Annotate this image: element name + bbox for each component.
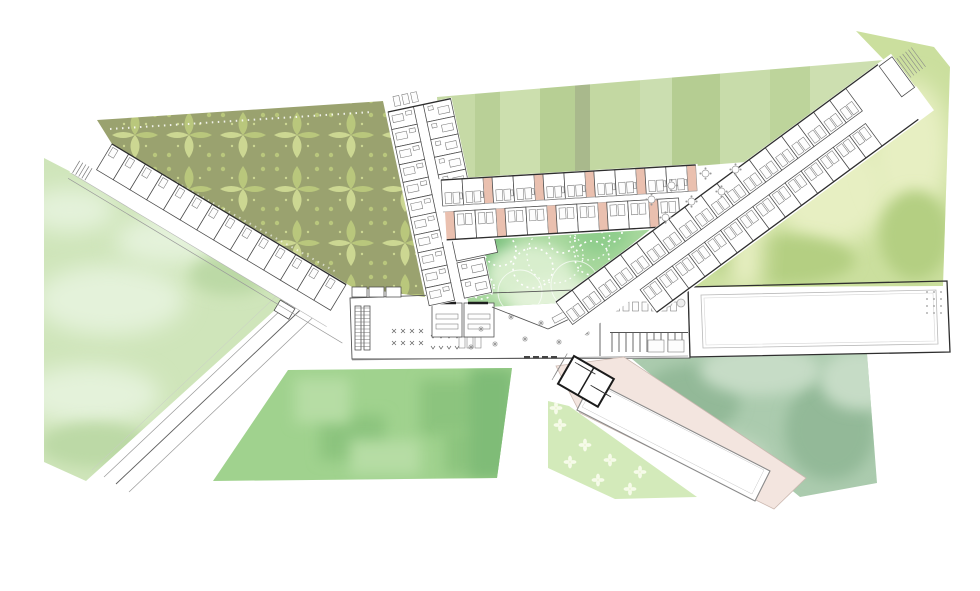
plant-icon bbox=[556, 339, 562, 345]
classroom-table bbox=[468, 324, 490, 329]
classroom-table bbox=[468, 314, 490, 319]
row-unit bbox=[441, 177, 493, 206]
chair-icon bbox=[419, 341, 423, 345]
bench-icon bbox=[447, 346, 451, 349]
step-line bbox=[560, 354, 567, 366]
storage-cell bbox=[369, 287, 384, 297]
hall-dot-row bbox=[926, 298, 942, 300]
classroom bbox=[432, 303, 462, 337]
balcony-cell bbox=[402, 94, 410, 105]
storage-cells bbox=[352, 287, 401, 297]
chair-icon bbox=[401, 341, 405, 345]
bench-icon bbox=[431, 346, 435, 349]
hall-court-line-2 bbox=[704, 293, 935, 345]
landscape-zones bbox=[20, 25, 960, 505]
classrooms bbox=[432, 303, 494, 337]
table-cluster-icon bbox=[699, 167, 711, 179]
table bbox=[459, 337, 465, 348]
chair-row bbox=[392, 329, 423, 333]
lawn-stripe bbox=[575, 40, 590, 190]
chair-icon bbox=[410, 329, 414, 333]
pool-garden-blob bbox=[700, 345, 820, 395]
lawn-stripe bbox=[640, 35, 672, 185]
room bbox=[543, 173, 566, 200]
shelf-unit bbox=[355, 306, 361, 350]
grove-blob bbox=[880, 190, 950, 280]
site-plan-canvas bbox=[0, 0, 980, 591]
row-unit bbox=[645, 165, 697, 194]
room bbox=[492, 176, 515, 203]
hall-dot-row bbox=[926, 305, 942, 307]
entrance-wall bbox=[492, 307, 548, 329]
classroom-table bbox=[436, 324, 458, 329]
fixture bbox=[633, 302, 639, 311]
chair-row bbox=[392, 341, 423, 345]
room bbox=[475, 209, 498, 238]
room bbox=[594, 170, 617, 197]
lawn-patch bbox=[470, 368, 515, 478]
lawn-stripe bbox=[500, 40, 540, 190]
room bbox=[607, 201, 630, 230]
door-dash bbox=[551, 356, 557, 358]
balcony-cell bbox=[411, 92, 419, 103]
room bbox=[577, 203, 600, 232]
plant-icon bbox=[508, 314, 514, 320]
room bbox=[505, 207, 528, 236]
bench-row bbox=[431, 346, 459, 349]
room bbox=[462, 178, 485, 205]
room bbox=[441, 179, 464, 206]
plant-icon bbox=[538, 320, 544, 326]
classroom bbox=[464, 303, 494, 337]
room bbox=[556, 204, 579, 233]
door-dash bbox=[533, 356, 539, 358]
wc-cabin bbox=[668, 340, 684, 352]
chair-icon bbox=[410, 341, 414, 345]
hall-dot-row bbox=[926, 291, 942, 293]
meadow-blob bbox=[20, 365, 160, 425]
bench-icon bbox=[455, 346, 459, 349]
plant-icon bbox=[492, 341, 498, 347]
door-dash bbox=[524, 356, 530, 358]
door-dash bbox=[542, 356, 548, 358]
storage-cell bbox=[352, 287, 367, 297]
room bbox=[628, 200, 651, 229]
lawn-stripe bbox=[540, 40, 575, 190]
wing-cap-balcony bbox=[393, 92, 419, 107]
lawn-patch bbox=[295, 378, 350, 423]
row-unit bbox=[505, 205, 558, 236]
chair-icon bbox=[419, 329, 423, 333]
room bbox=[564, 172, 587, 199]
pool-garden-blob bbox=[820, 350, 900, 410]
hall-dot-row bbox=[926, 312, 942, 314]
plant-icon bbox=[522, 336, 528, 342]
meadow-blob bbox=[35, 265, 185, 335]
table bbox=[475, 337, 481, 348]
row-unit bbox=[543, 171, 595, 200]
meadow-blob bbox=[40, 423, 150, 467]
sports-hall bbox=[688, 281, 950, 357]
fixture bbox=[642, 302, 648, 311]
row-unit bbox=[556, 202, 609, 233]
chair-icon bbox=[392, 329, 396, 333]
lawn-stripe bbox=[475, 40, 500, 190]
shelf-unit bbox=[364, 306, 370, 350]
meadow-blob bbox=[25, 188, 115, 232]
lawn-patch bbox=[350, 440, 420, 475]
loggia bbox=[687, 165, 698, 191]
room bbox=[526, 206, 549, 235]
lawn-stripe bbox=[590, 40, 640, 190]
room bbox=[645, 167, 668, 194]
classroom-table bbox=[436, 314, 458, 319]
row-unit bbox=[492, 174, 544, 203]
room bbox=[666, 165, 689, 192]
site-plan-page bbox=[0, 0, 980, 591]
wc-cabin bbox=[648, 340, 664, 352]
row-unit bbox=[594, 168, 646, 197]
chair-icon bbox=[392, 341, 396, 345]
room bbox=[615, 168, 638, 195]
bench-icon bbox=[439, 346, 443, 349]
storage-cell bbox=[386, 287, 401, 297]
round-table bbox=[677, 299, 685, 307]
room bbox=[454, 210, 477, 239]
hall-court-line bbox=[701, 290, 938, 348]
balcony-cell bbox=[393, 95, 401, 106]
room bbox=[513, 175, 536, 202]
row-unit bbox=[454, 208, 507, 239]
chair-icon bbox=[401, 329, 405, 333]
lawn-stripe bbox=[672, 35, 720, 185]
